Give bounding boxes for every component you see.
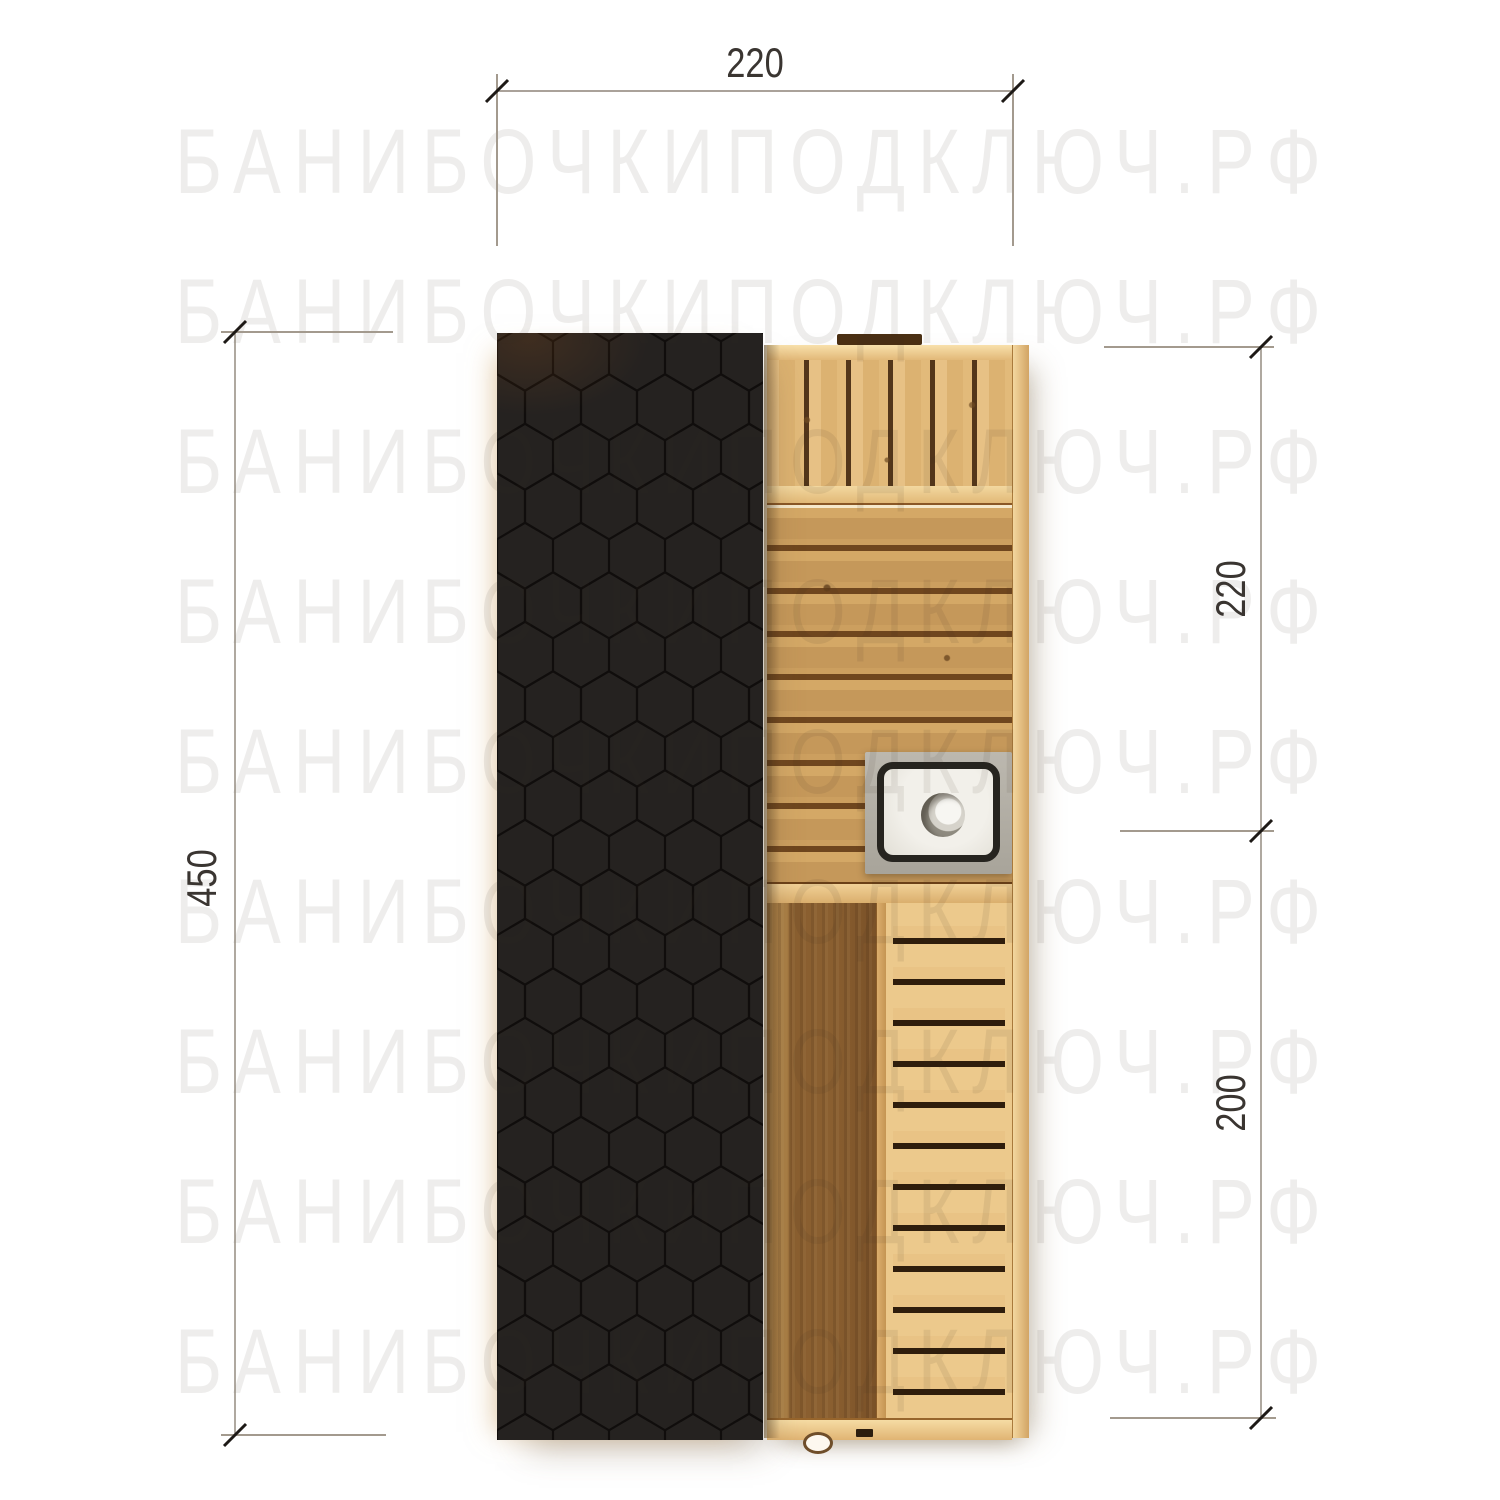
watermark-text: БАНИБОЧКИПОДКЛЮЧ.РФ <box>175 116 1333 208</box>
dim-right-upper: 220 <box>1208 507 1254 671</box>
terrace-deck-floor <box>886 903 1012 1418</box>
dim-left-length: 450 <box>179 796 225 960</box>
bench-front-rail <box>767 486 1012 505</box>
roof-edge-shadow <box>764 345 780 1438</box>
roof-vent-bar <box>837 334 922 345</box>
dim-top-width: 220 <box>673 40 837 86</box>
bench-deck-slats <box>767 360 1012 486</box>
shingle-roof-plan <box>497 333 763 1440</box>
dim-right-lower: 200 <box>1208 1021 1254 1185</box>
building-interior-plan <box>764 345 1028 1438</box>
terrace-deck-slats <box>893 903 1005 1412</box>
door-handle-icon <box>803 1432 833 1454</box>
stove-top-view <box>865 752 1012 874</box>
right-wall <box>1012 345 1029 1438</box>
entrance-floor <box>767 903 876 1418</box>
chimney-pipe-icon <box>921 793 965 837</box>
door-latch-icon <box>856 1429 873 1437</box>
entrance-wall <box>767 1418 1012 1440</box>
roof-corner-glow <box>497 333 763 1440</box>
sauna-floor-plan-canvas: БАНИБОЧКИПОДКЛЮЧ.РФ БАНИБОЧКИПОДКЛЮЧ.РФ … <box>0 0 1500 1500</box>
